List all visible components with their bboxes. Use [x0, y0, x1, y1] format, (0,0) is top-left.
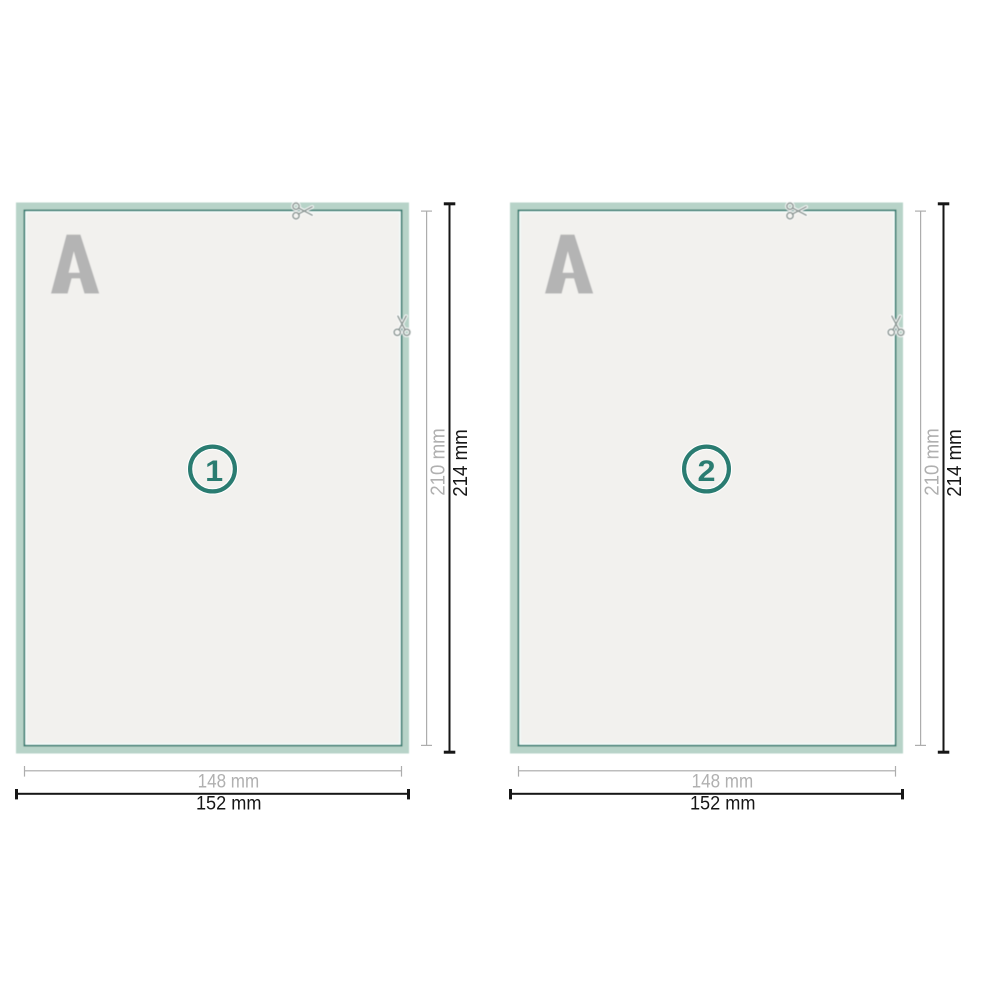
svg-text:152 mm: 152 mm	[196, 793, 262, 814]
svg-text:148 mm: 148 mm	[198, 771, 260, 792]
svg-text:210 mm: 210 mm	[920, 428, 943, 496]
svg-text:214 mm: 214 mm	[943, 429, 966, 497]
svg-text:210 mm: 210 mm	[426, 428, 449, 496]
svg-text:148 mm: 148 mm	[692, 771, 754, 792]
svg-text:214 mm: 214 mm	[449, 429, 472, 497]
svg-text:2: 2	[697, 454, 715, 488]
svg-text:1: 1	[205, 454, 223, 488]
svg-text:152 mm: 152 mm	[690, 793, 756, 814]
